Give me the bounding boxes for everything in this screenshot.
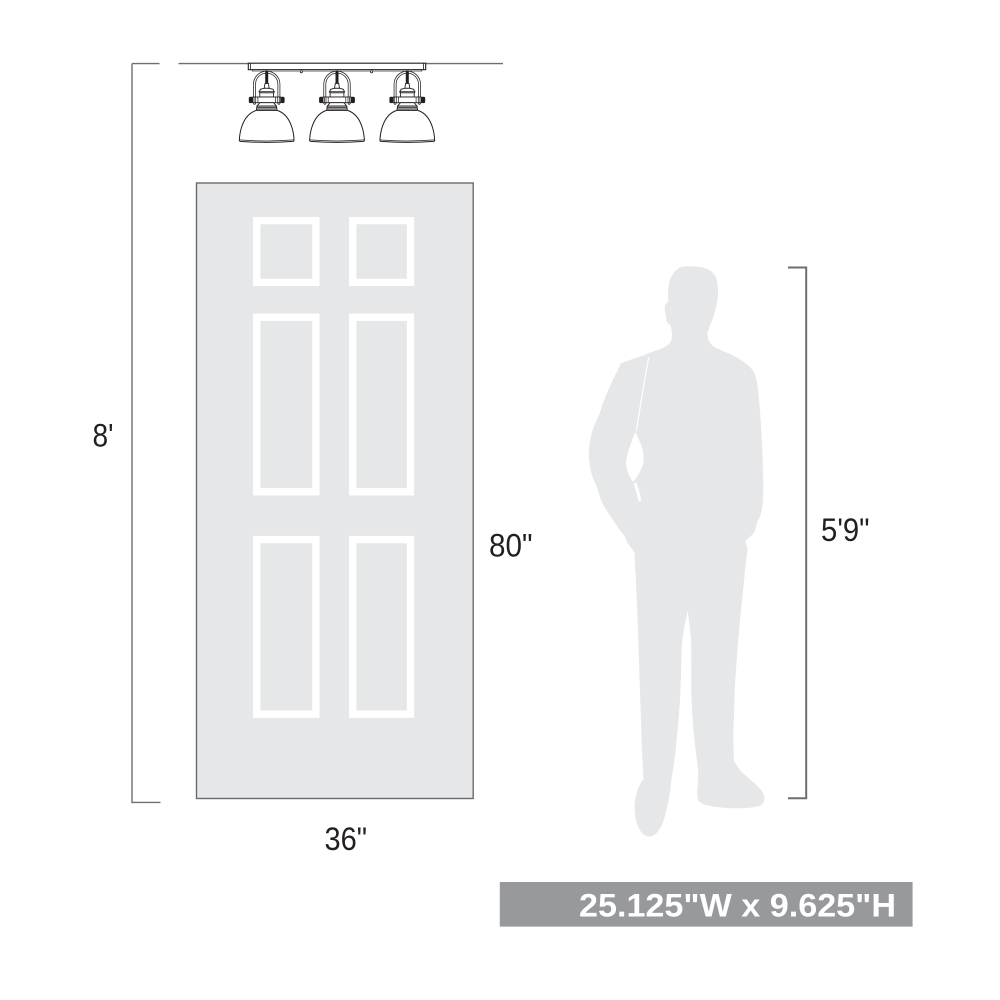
svg-text:36": 36" (325, 821, 368, 857)
svg-text:5'9": 5'9" (821, 512, 870, 548)
svg-text:8': 8' (93, 418, 114, 454)
svg-text:80": 80" (489, 528, 533, 564)
svg-text:25.125"W x 9.625"H: 25.125"W x 9.625"H (579, 888, 896, 924)
